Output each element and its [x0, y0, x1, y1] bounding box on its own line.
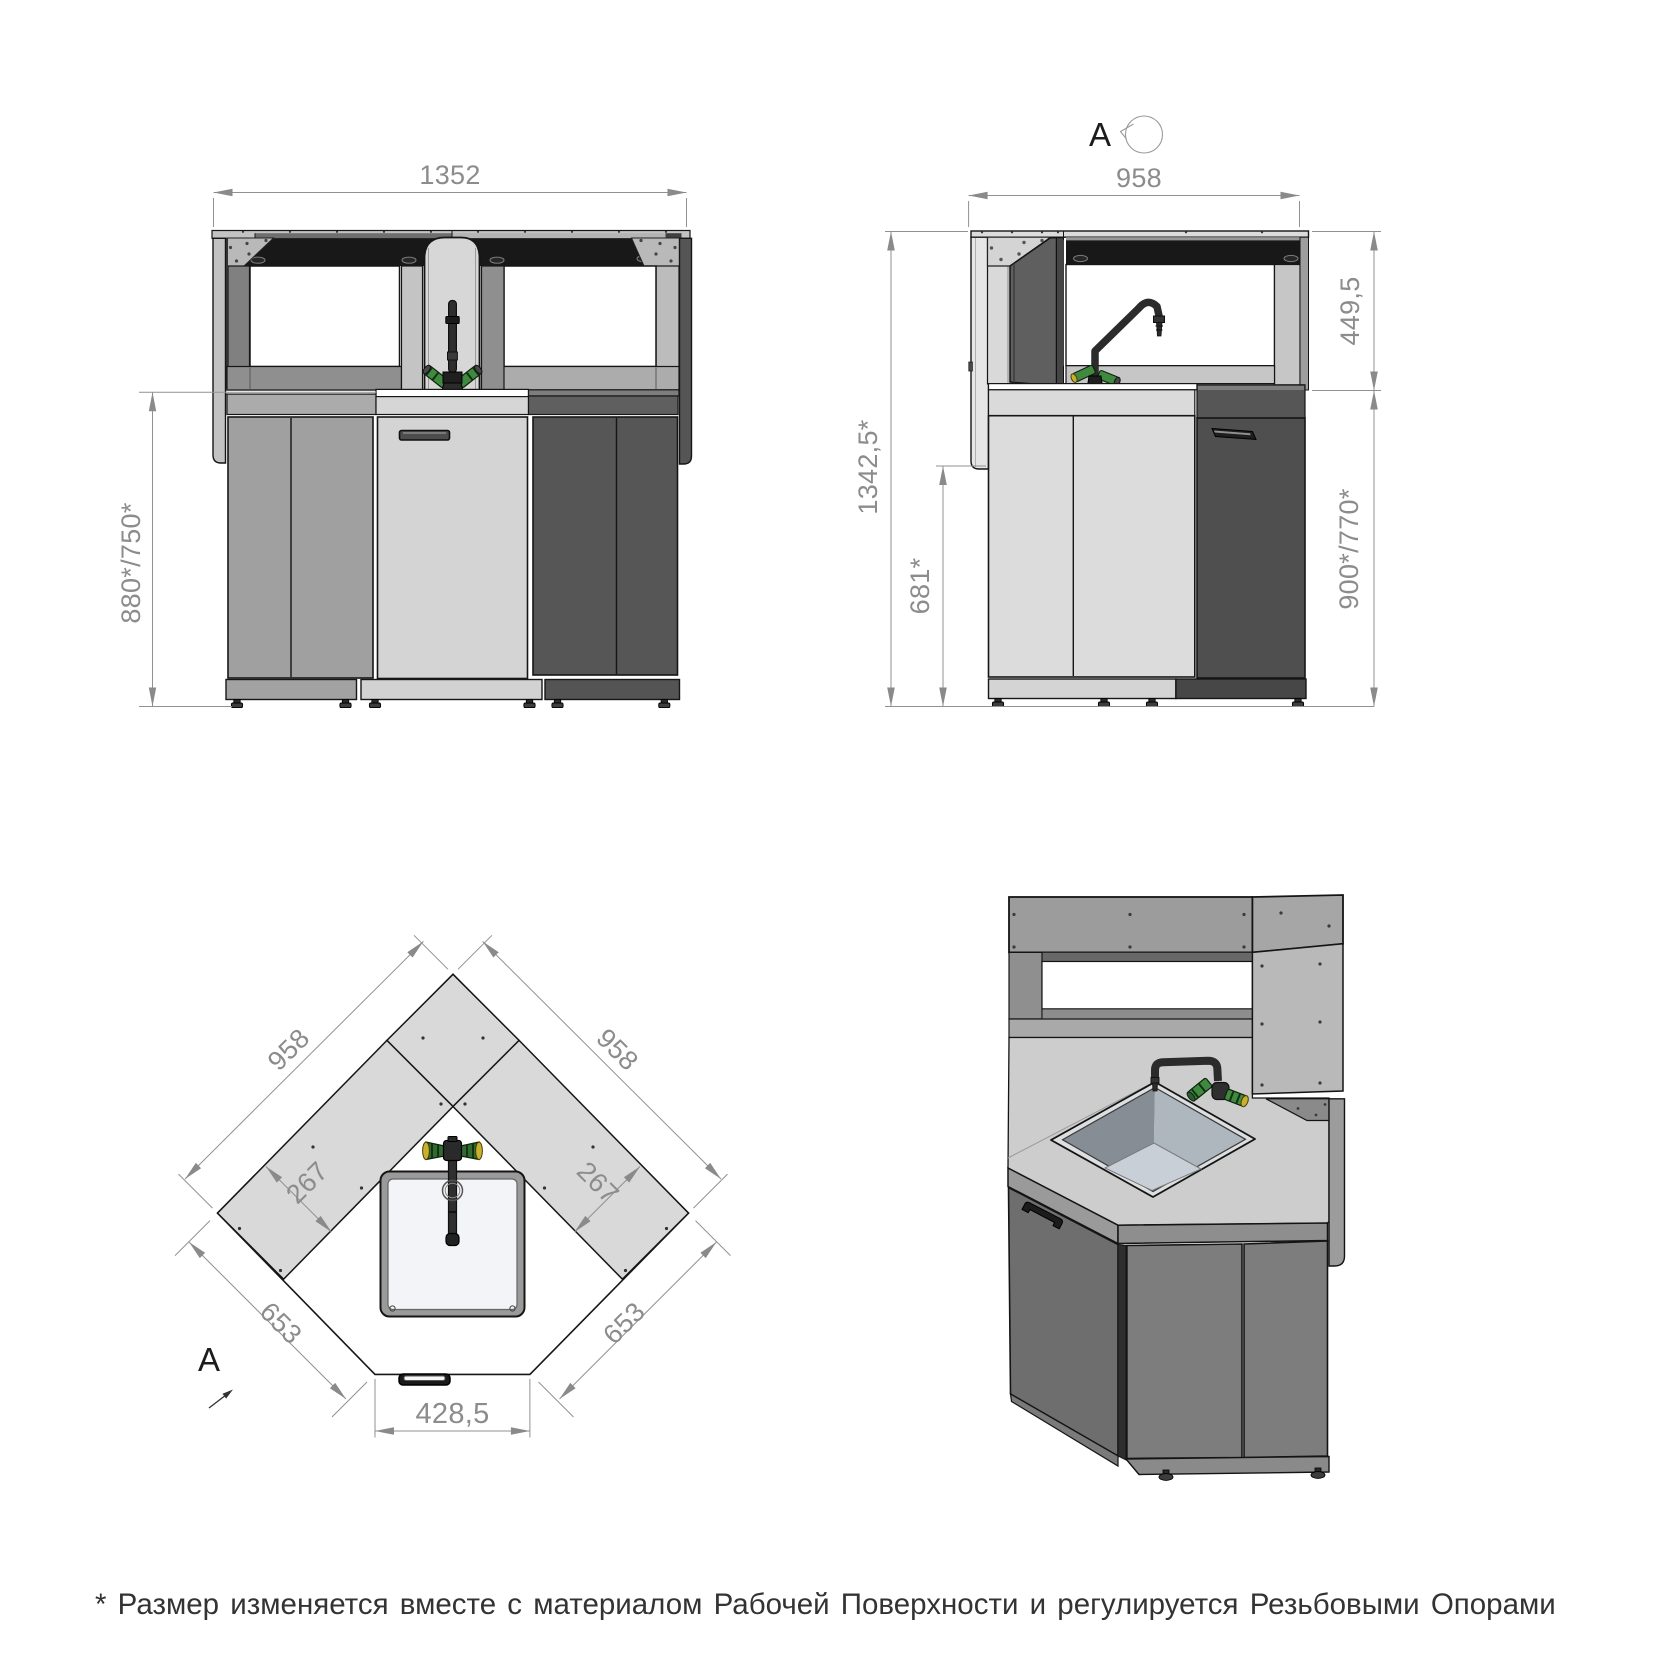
svg-text:1352: 1352 — [419, 160, 480, 190]
svg-text:880*/750*: 880*/750* — [116, 502, 146, 624]
svg-text:1342,5*: 1342,5* — [853, 419, 883, 514]
svg-text:449,5: 449,5 — [1335, 276, 1365, 345]
svg-text:900*/770*: 900*/770* — [1334, 488, 1364, 610]
svg-text:A: A — [198, 1341, 220, 1378]
svg-text:428,5: 428,5 — [415, 1398, 489, 1430]
svg-text:A: A — [1089, 116, 1111, 153]
svg-text:* Размер изменяется вместе с м: * Размер изменяется вместе с материалом … — [95, 1588, 1556, 1621]
svg-text:681*: 681* — [905, 557, 935, 614]
svg-text:958: 958 — [1116, 163, 1162, 193]
